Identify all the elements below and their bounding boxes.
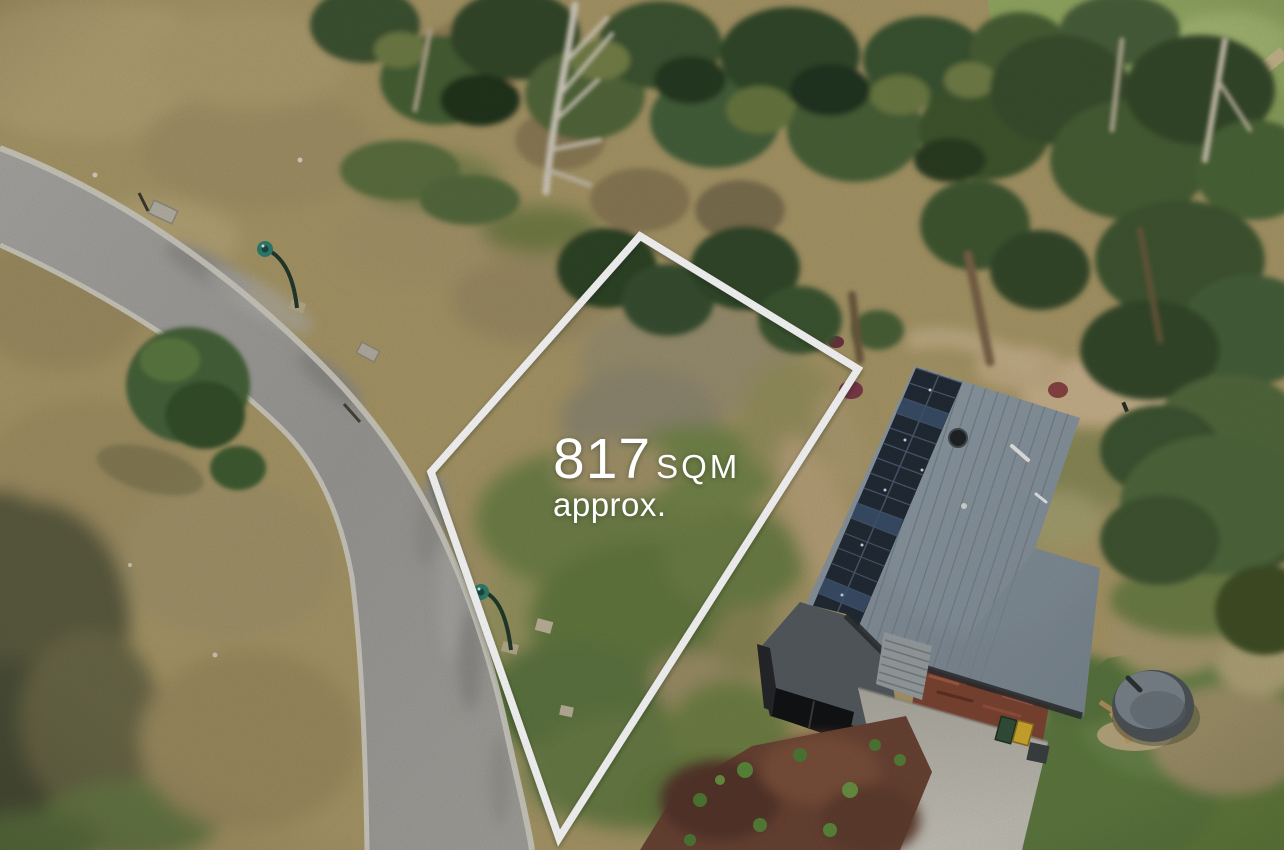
area-qualifier: approx. bbox=[553, 488, 740, 521]
area-unit: SQM bbox=[656, 452, 740, 482]
film-grain bbox=[0, 0, 1284, 850]
area-value: 817 bbox=[553, 434, 651, 485]
photo-canvas bbox=[0, 0, 1284, 850]
area-label: 817 SQM approx. bbox=[553, 434, 740, 521]
aerial-property-photo: 817 SQM approx. bbox=[0, 0, 1284, 850]
area-size-row: 817 SQM bbox=[553, 434, 740, 485]
